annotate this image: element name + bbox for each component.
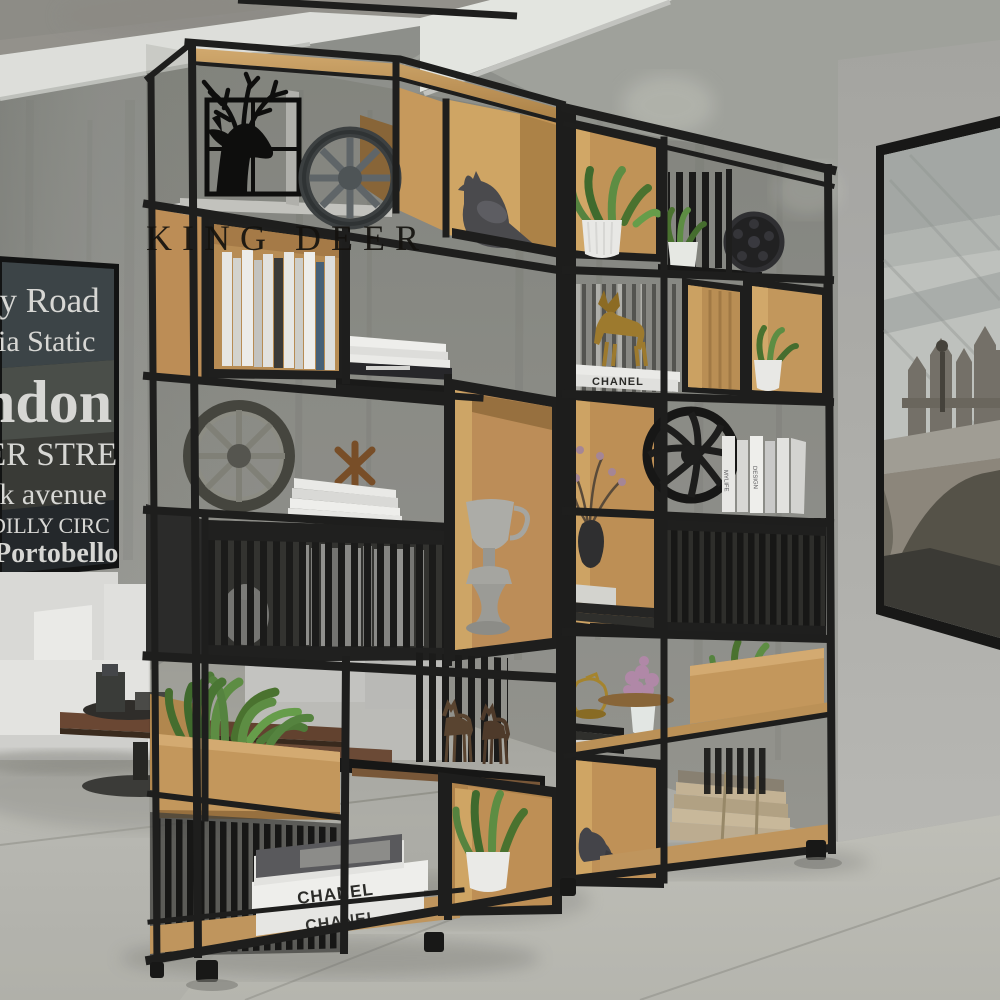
svg-text:KING DEER: KING DEER	[146, 218, 429, 258]
